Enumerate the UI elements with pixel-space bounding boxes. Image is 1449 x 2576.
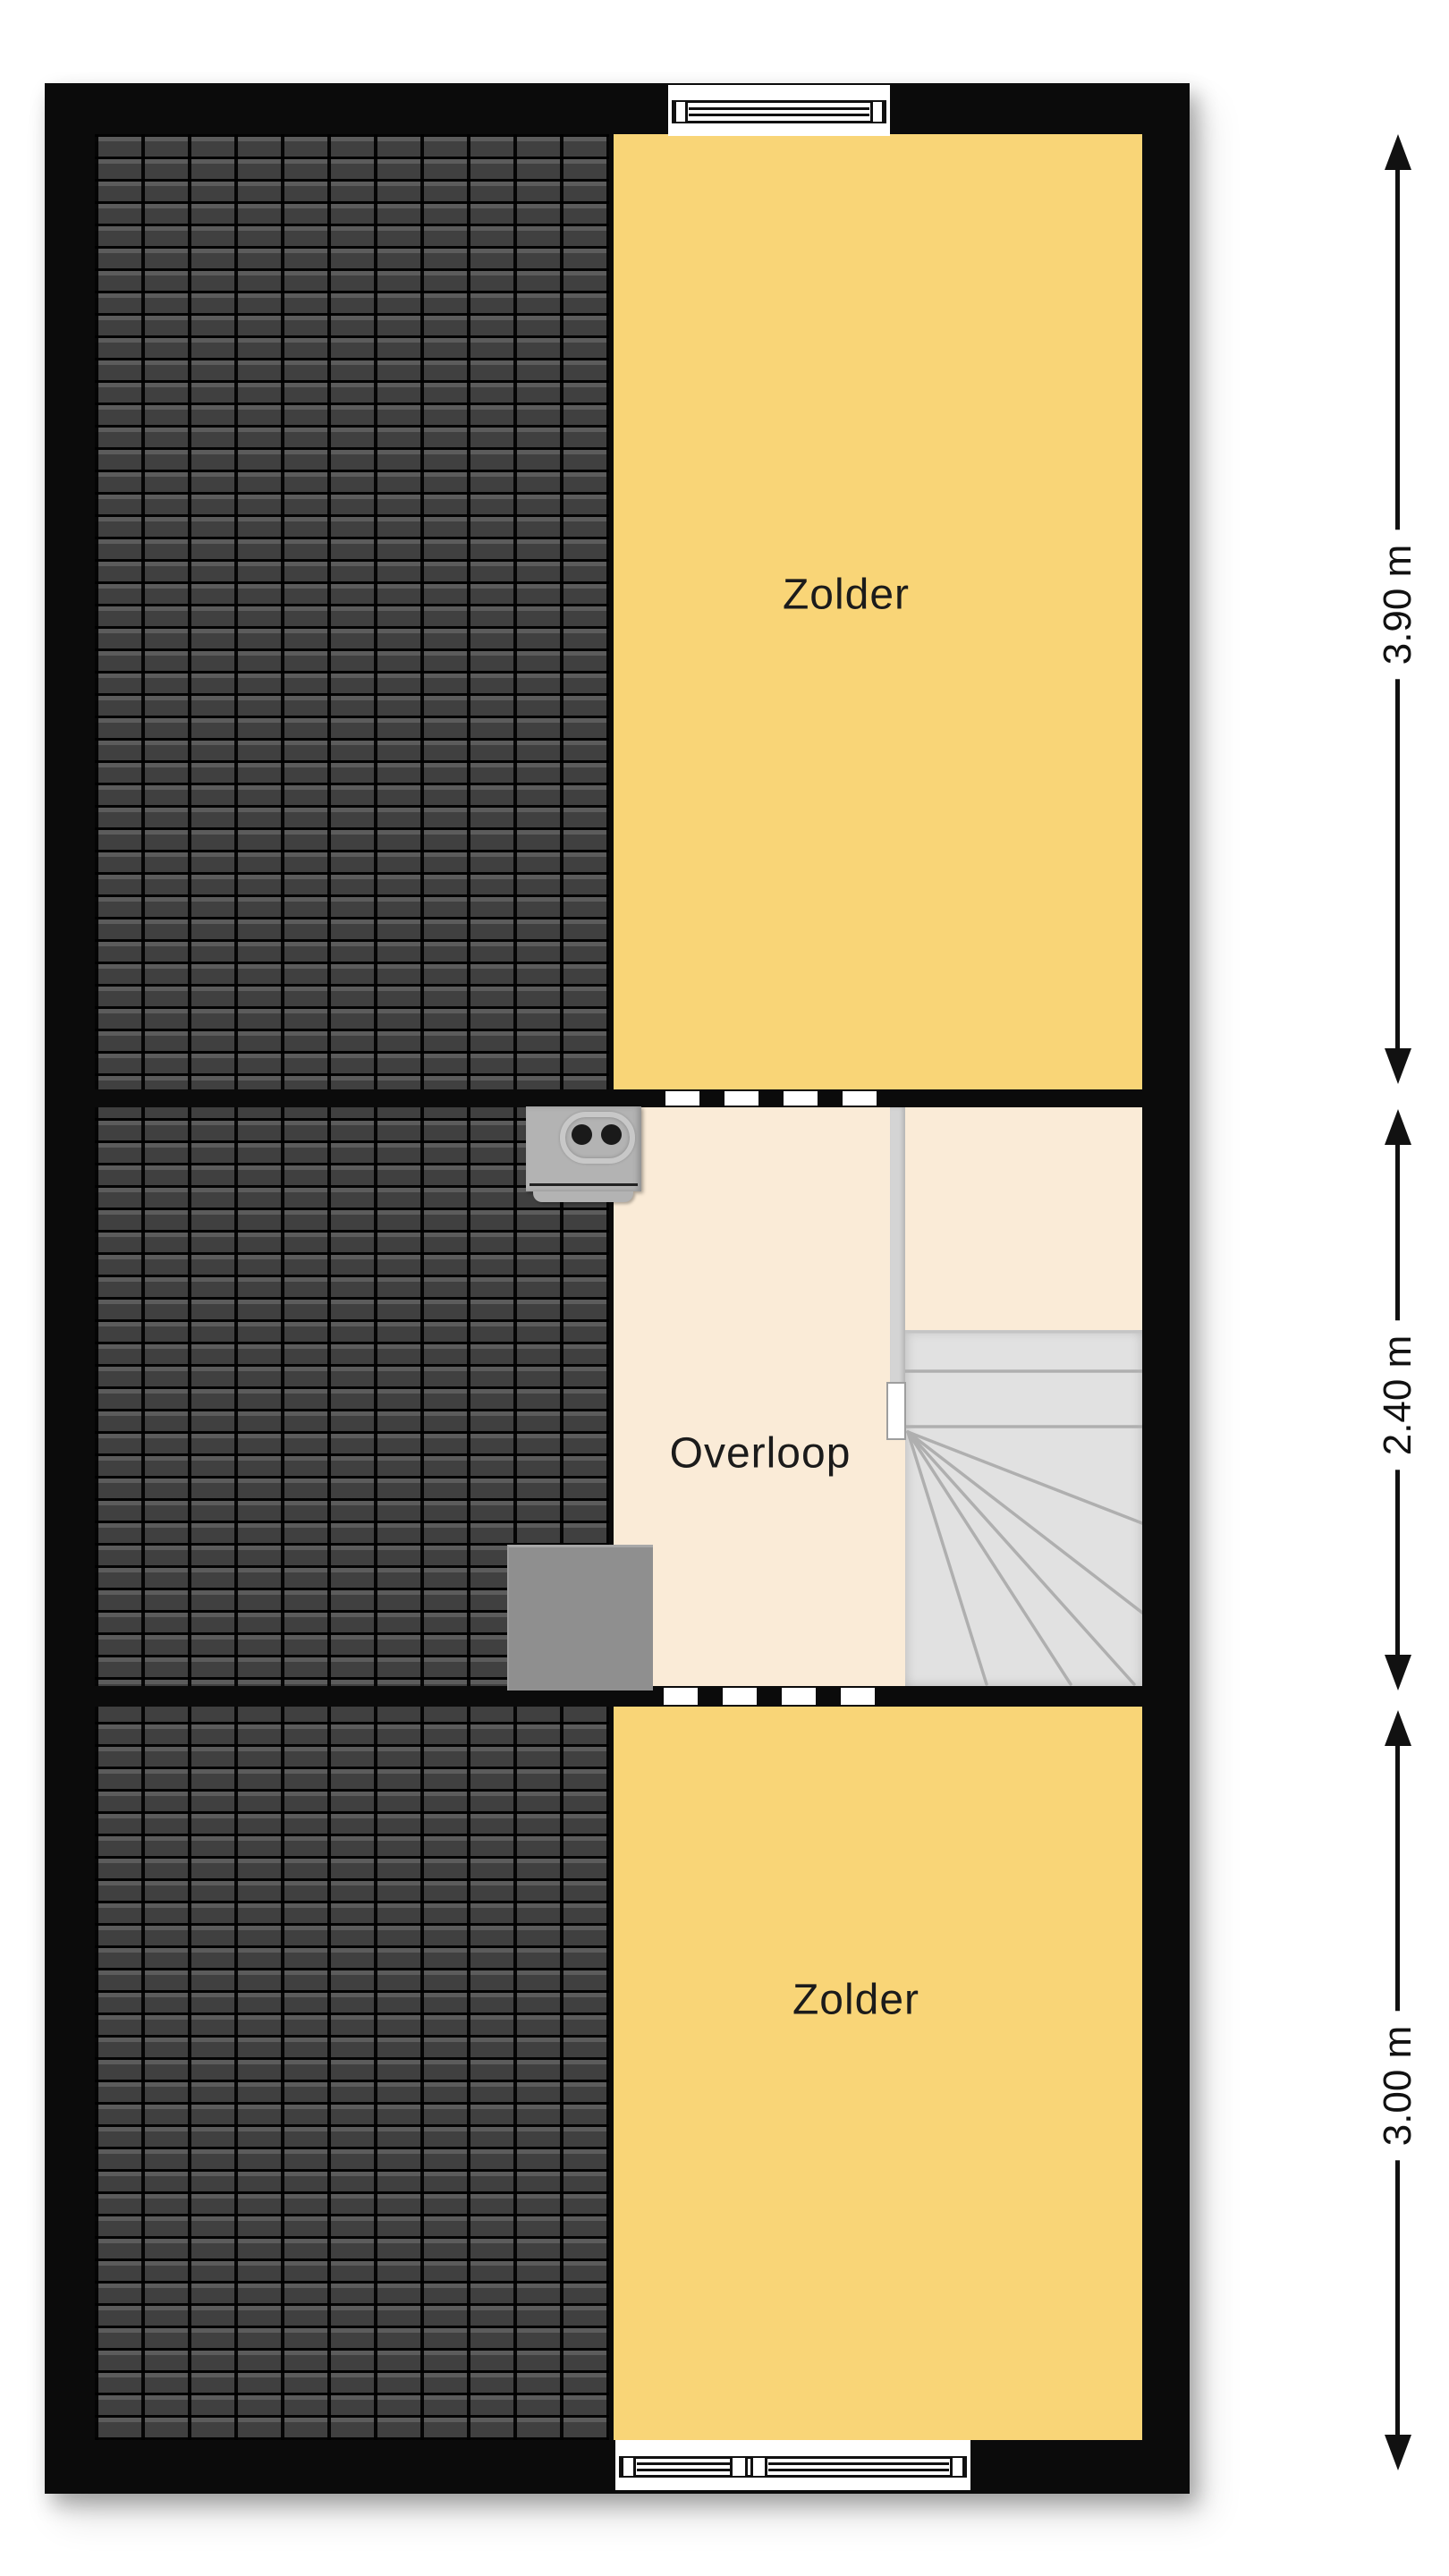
- dimension-arrow-up: [1385, 1109, 1411, 1145]
- dimension-label-top: 3.90 m: [1368, 530, 1428, 680]
- dimension-arrow-up: [1385, 134, 1411, 170]
- window-top: [668, 85, 890, 136]
- stair-steps-svg: [905, 1330, 1142, 1686]
- room-label-zolder-bottom: Zolder: [792, 1976, 919, 2025]
- window-glazing: [689, 103, 869, 121]
- window-top-frame: [672, 100, 886, 123]
- boiler-flue-circle-left: [572, 1124, 592, 1145]
- room-label-zolder-top: Zolder: [783, 571, 910, 620]
- dashed-opening-top: [665, 1091, 885, 1106]
- dimension-label-middle: 2.40 m: [1368, 1321, 1428, 1470]
- window-mullion: [870, 102, 885, 122]
- room-label-overloop: Overloop: [670, 1429, 852, 1479]
- boiler-flue-circle-right: [601, 1124, 622, 1145]
- window-bottom: [615, 2440, 970, 2490]
- stair-newel-post: [886, 1382, 906, 1440]
- room-zolder-bottom: [614, 1707, 1142, 2440]
- boiler-front-line: [530, 1183, 638, 1186]
- window-mullion: [750, 2458, 767, 2476]
- window-bottom-frame: [619, 2456, 967, 2478]
- window-mullion: [674, 102, 688, 122]
- divider-wall-top: [95, 1089, 1142, 1107]
- boiler-unit: [526, 1106, 641, 1191]
- boiler-unit-base: [533, 1191, 633, 1202]
- window-mullion: [621, 2458, 636, 2476]
- roof-tiles-area: [95, 134, 609, 2440]
- dimension-arrow-down: [1385, 1048, 1411, 1084]
- chimney-shaft-block: [507, 1545, 653, 1690]
- floorplan-canvas: Zolder Overloop Zolder 3.90 m 2.40 m 3.0…: [0, 0, 1449, 2576]
- dimension-arrow-up: [1385, 1710, 1411, 1746]
- dimension-arrow-down: [1385, 2435, 1411, 2470]
- window-mullion: [950, 2458, 965, 2476]
- window-glazing: [637, 2459, 730, 2475]
- dashed-opening-bottom: [664, 1688, 885, 1705]
- window-glazing: [768, 2459, 949, 2475]
- dimension-label-bottom: 3.00 m: [1368, 2012, 1428, 2161]
- window-mullion: [730, 2458, 748, 2476]
- dimension-arrow-down: [1385, 1655, 1411, 1690]
